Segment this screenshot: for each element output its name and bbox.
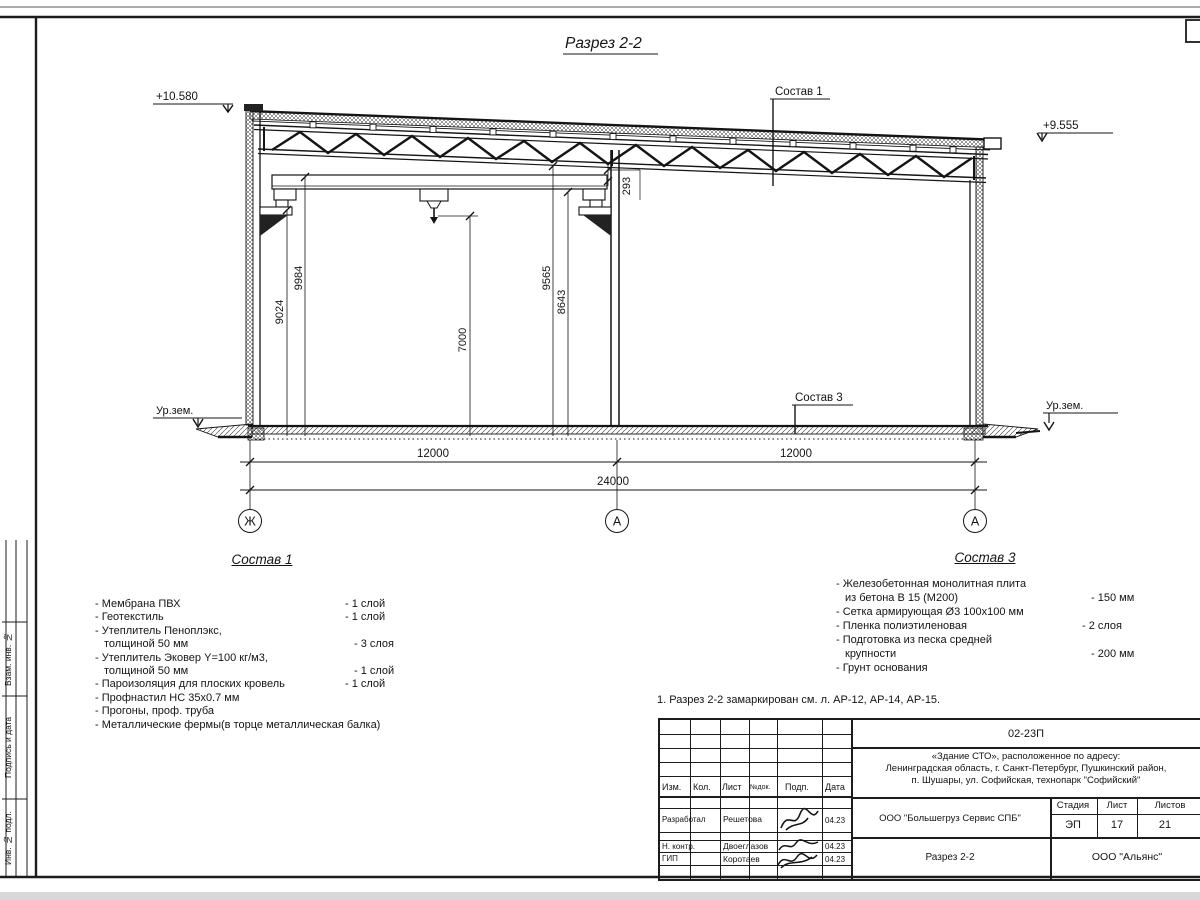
tb-project-line1: «Здание СТО», расположенное по адресу: xyxy=(932,751,1121,762)
dim-293: 293 xyxy=(621,177,633,195)
list-item: - Пароизоляция для плоских кровель- 1 сл… xyxy=(95,678,425,691)
composition3-list: - Железобетонная монолитная плита из бет… xyxy=(836,577,1136,675)
ground-right-label: Ур.зем. xyxy=(1046,400,1083,412)
list-item: из бетона В 15 (М200)- 150 мм xyxy=(836,591,1136,605)
tb-date-ncontr: 04.23 xyxy=(825,842,845,851)
floor-slab xyxy=(196,424,1040,439)
axis-left: Ж xyxy=(244,515,256,529)
list-item: - Профнастил НС 35х0.7 мм xyxy=(95,692,425,705)
view-title: Разрез 2-2 xyxy=(563,35,658,54)
dim-9565: 9565 xyxy=(541,266,553,290)
apron-right xyxy=(983,424,1038,437)
tb-col-podp: Подп. xyxy=(785,782,809,792)
tb-sheet-title: Разрез 2-2 xyxy=(925,852,974,863)
tb-name-gip: Коротаев xyxy=(723,854,760,864)
tb-project-line3: п. Шушары, ул. Софийская, технопарк "Соф… xyxy=(912,775,1141,786)
tb-col-data: Дата xyxy=(825,782,845,792)
crane-hoist xyxy=(420,189,448,224)
list-item: - Геотекстиль- 1 слой xyxy=(95,611,425,624)
tb-sheet-label: Лист xyxy=(1107,800,1128,811)
tb-role-ncontr: Н. контр. xyxy=(662,842,695,851)
list-item: - Утеплитель Эковер Y=100 кг/м3, xyxy=(95,652,425,665)
ground-left-label: Ур.зем. xyxy=(156,405,193,417)
list-item: толщиной 50 мм- 3 слоя xyxy=(95,638,425,651)
dim-total: 24000 xyxy=(597,476,629,488)
dim-8643: 8643 xyxy=(556,290,568,314)
tb-stage-label: Стадия xyxy=(1057,800,1089,811)
signature-gip xyxy=(775,847,821,873)
axis-middle: А xyxy=(613,515,622,529)
list-item: - Железобетонная монолитная плита xyxy=(836,577,1136,591)
leader-floor-label: Состав 3 xyxy=(795,392,843,404)
tb-project-line2: Ленинградская область, г. Санкт-Петербур… xyxy=(886,763,1167,774)
dim-bay-right: 12000 xyxy=(780,448,812,460)
left-wall xyxy=(244,104,264,440)
drawing-note: 1. Разрез 2-2 замаркирован см. л. АР-12,… xyxy=(657,694,940,706)
apron-left xyxy=(196,424,252,437)
tb-doc-number: 02-23П xyxy=(1008,728,1044,740)
tb-stage-value: ЭП xyxy=(1065,819,1081,831)
list-item: крупности- 200 мм xyxy=(836,647,1136,661)
tb-date-gip: 04.23 xyxy=(825,855,845,864)
title-block: Изм. Кол. Лист №док. Подп. Дата Разработ… xyxy=(658,718,1200,881)
tb-sheet-value: 17 xyxy=(1111,819,1123,831)
composition1-list: - Мембрана ПВХ- 1 слой - Геотекстиль- 1 … xyxy=(95,598,425,732)
tb-name-developer: Решетова xyxy=(723,814,762,824)
list-item: толщиной 50 мм- 1 слой xyxy=(95,665,425,678)
viewer-bottom-strip xyxy=(0,892,1200,900)
tb-role-gip: ГИП xyxy=(662,854,678,863)
elevation-mark-right: +9.555 xyxy=(1037,120,1113,141)
crane-bridge xyxy=(260,175,611,236)
drawing-sheet: Разрез 2-2 xyxy=(0,0,1200,900)
right-wall xyxy=(964,147,983,440)
ground-mark-right: Ур.зем. xyxy=(1043,400,1118,430)
list-item: - Прогоны, проф. труба xyxy=(95,705,425,718)
margin-label-inv: Инв. № подл. xyxy=(1,799,15,877)
list-item: - Утеплитель Пеноплэкс, xyxy=(95,625,425,638)
crane-bracket-middle xyxy=(579,207,611,236)
elevation-right-value: +9.555 xyxy=(1043,120,1079,132)
vertical-dimensions: 9024 9984 7000 9565 8643 293 xyxy=(274,162,640,436)
axis-right: А xyxy=(971,515,980,529)
dim-9024: 9024 xyxy=(274,300,286,324)
list-item: - Мембрана ПВХ- 1 слой xyxy=(95,598,425,611)
middle-column xyxy=(611,150,619,427)
list-item: - Металлические фермы(в торце металличес… xyxy=(95,719,425,732)
tb-role-developer: Разработал xyxy=(662,815,706,824)
tb-col-kol: Кол. xyxy=(693,782,711,792)
elevation-left-value: +10.580 xyxy=(156,91,198,103)
list-item: - Пленка полиэтиленовая- 2 слоя xyxy=(836,619,1136,633)
tb-col-list: Лист xyxy=(722,782,742,792)
tb-client: ООО "Большегруз Сервис СПБ" xyxy=(879,813,1021,824)
composition3-title: Состав 3 xyxy=(925,550,1045,565)
tb-name-ncontr: Двоеглазов xyxy=(723,841,768,851)
dim-bay-left: 12000 xyxy=(417,448,449,460)
axis-bubbles: Ж А А xyxy=(239,510,987,533)
margin-label-vzam: Взам. инв. № xyxy=(1,622,15,696)
leader-roof-label: Состав 1 xyxy=(775,86,823,98)
tb-col-doc: №док. xyxy=(750,784,771,791)
composition1-title: Состав 1 xyxy=(202,552,322,567)
dim-7000: 7000 xyxy=(457,328,469,352)
list-item: - Грунт основания xyxy=(836,661,1136,675)
list-item: - Сетка армирующая Ø3 100х100 мм xyxy=(836,605,1136,619)
tb-col-izm: Изм. xyxy=(662,782,681,792)
elevation-mark-left: +10.580 xyxy=(153,91,233,112)
ground-mark-left: Ур.зем. xyxy=(153,405,242,427)
view-title-text: Разрез 2-2 xyxy=(565,35,642,52)
tb-sheets-label: Листов xyxy=(1155,800,1186,811)
dim-9984: 9984 xyxy=(293,266,305,290)
signature-developer xyxy=(777,806,822,834)
list-item: - Подготовка из песка средней xyxy=(836,633,1136,647)
tb-company: ООО "Альянс" xyxy=(1092,851,1162,863)
tb-date-developer: 04.23 xyxy=(825,816,845,825)
tb-sheets-value: 21 xyxy=(1159,819,1171,831)
horizontal-dimensions: 12000 12000 24000 xyxy=(240,440,987,509)
margin-label-podpis: Подпись и дата xyxy=(1,696,15,799)
